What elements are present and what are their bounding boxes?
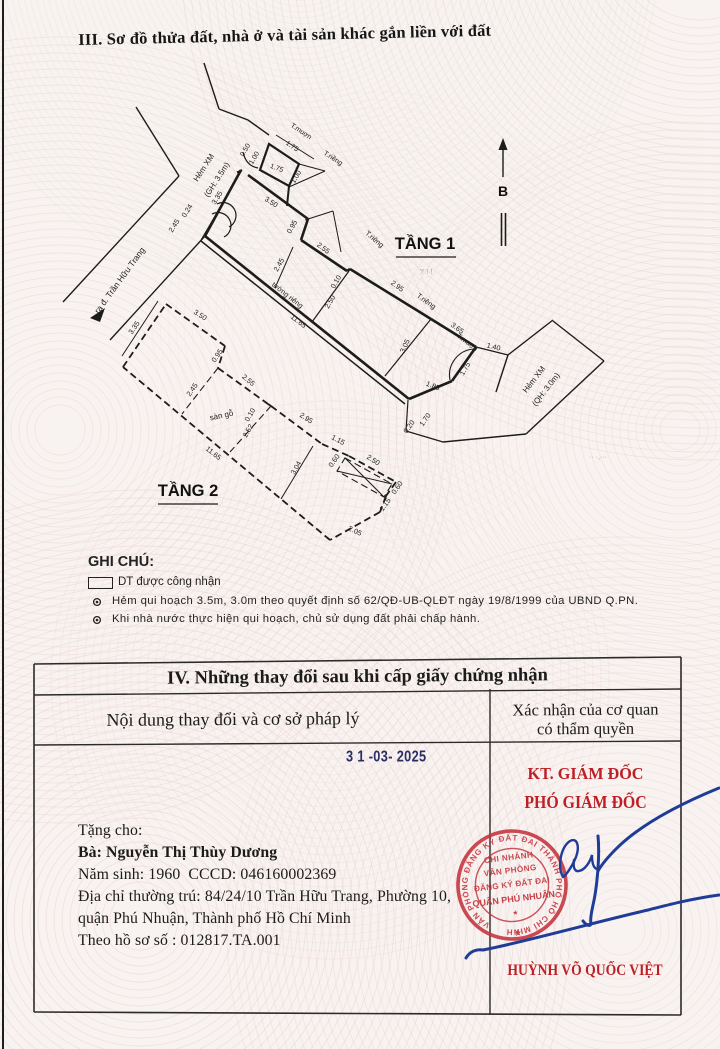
svg-text:·· ·,···: ·· ·,···	[589, 454, 607, 461]
svg-text:0.10: 0.10	[328, 273, 343, 290]
svg-text:★: ★	[512, 908, 519, 917]
svg-text:TẦNG 2: TẦNG 2	[158, 481, 219, 500]
svg-text:0.20: 0.20	[401, 418, 416, 435]
svg-text:0.95: 0.95	[209, 347, 224, 364]
svg-text:3.35: 3.35	[126, 319, 141, 336]
svg-text:0.10: 0.10	[242, 406, 257, 423]
svg-text:1.70: 1.70	[417, 411, 432, 428]
svg-text:TẦNG 1: TẦNG 1	[395, 234, 456, 253]
svg-text:2.95: 2.95	[389, 278, 406, 294]
svg-text:0.95: 0.95	[284, 218, 299, 235]
svg-text:2.45: 2.45	[166, 217, 181, 234]
svg-text:0.60: 0.60	[389, 479, 404, 496]
svg-text:1.40: 1.40	[486, 340, 502, 352]
svg-text:B: B	[498, 183, 508, 199]
svg-text:3.50: 3.50	[192, 307, 209, 322]
svg-text:’!’ !·!: ’!’ !·!	[420, 269, 433, 276]
svg-text:2.05: 2.05	[347, 524, 363, 538]
